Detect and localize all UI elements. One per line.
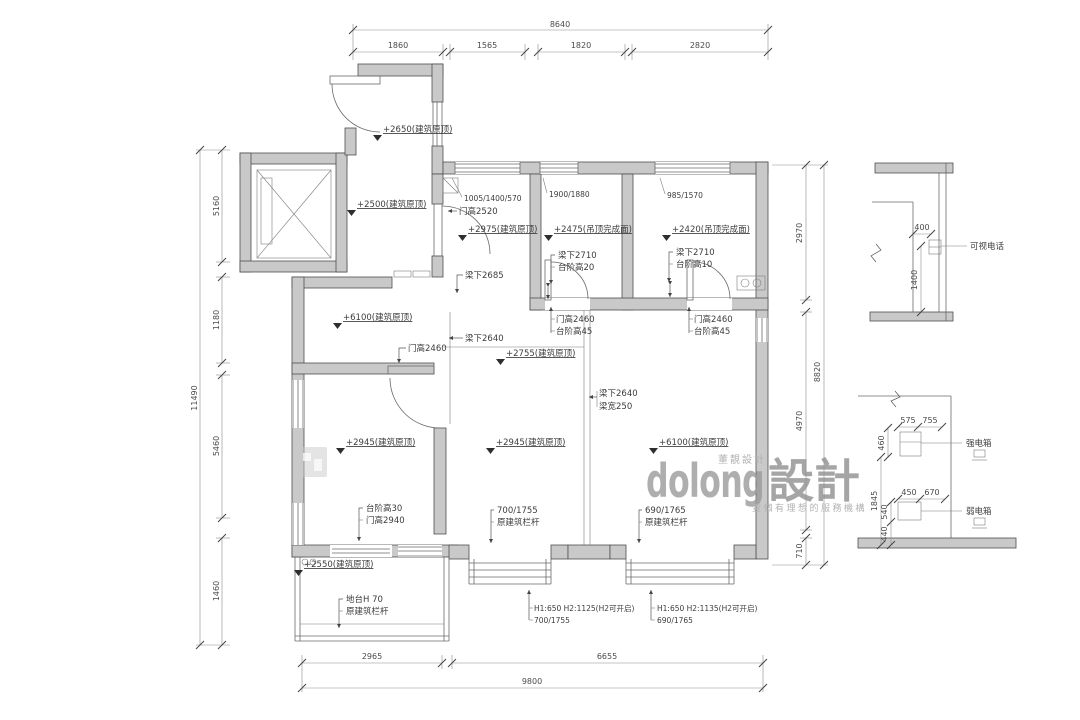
detail-dim: 755 (922, 416, 937, 425)
door-height-note: 门高2460 (694, 314, 733, 325)
dim-right-total: 8820 (813, 362, 822, 382)
railing-note: 原建筑栏杆 (645, 517, 688, 528)
watermark-logo-latin: dolong (646, 454, 764, 508)
note-annotations: 门高2520 1005/1400/570 1900/1880 985/1570 … (339, 178, 757, 628)
detail-dim: 440 (880, 526, 889, 541)
entry-door-leaf (434, 204, 442, 256)
railing-size-note: 700/1755 (497, 506, 538, 516)
level-label: +2975(建筑原顶) (468, 224, 537, 235)
dim-left-1: 5160 (212, 196, 221, 216)
detail-intercom: 400 1400 可视电话 (870, 163, 1005, 321)
level-label: +6100(建筑原顶) (343, 312, 412, 323)
window-size-note: 690/1765 (657, 616, 693, 625)
detail-dim: 1845 (870, 491, 879, 511)
detail-dim: 540 (880, 504, 889, 519)
dim-top-3: 1820 (571, 41, 591, 50)
box-symbol (974, 450, 985, 457)
dimension-chain-top: 8640 1860 1565 1820 2820 (349, 20, 772, 60)
break-symbol (891, 391, 900, 407)
box-symbol (974, 518, 985, 525)
beam-note: 梁下2710 (676, 248, 715, 258)
dim-left-2: 1180 (212, 310, 221, 330)
dimension-chain-left: 11490 5160 1180 5460 1460 (190, 146, 230, 649)
detail-dim: 460 (877, 435, 886, 450)
dim-right-3: 710 (795, 543, 804, 558)
detail-electrical: 强电箱 弱电箱 575 755 460 1845 450 670 540 440 (858, 391, 1016, 549)
dim-top-4: 2820 (690, 41, 710, 50)
watermark-tagline-bottom: 壹個有理想的服務機構 (752, 502, 867, 514)
level-label: +2945(建筑原顶) (496, 437, 565, 448)
railing-note: 原建筑栏杆 (346, 606, 389, 617)
dim-bottom-2: 6655 (597, 652, 617, 661)
break-symbol (871, 244, 881, 262)
window-size-note: 985/1570 (667, 191, 703, 200)
floor-plan-canvas: 8640 1860 1565 1820 2820 11490 5160 1180… (0, 0, 1080, 720)
dim-left-4: 1460 (212, 581, 221, 601)
detail-dim: 450 (901, 488, 916, 497)
step-note: 台阶高45 (694, 326, 730, 337)
intercom-label: 可视电话 (970, 241, 1005, 252)
dim-bottom-1: 2965 (362, 652, 382, 661)
window-size-note: 1005/1400/570 (464, 194, 522, 203)
watermark-logo-cjk: 設計 (768, 454, 860, 508)
window-size-note: 700/1755 (534, 616, 570, 625)
window-opening-note: H1:650 H2:1125(H2可开启) (534, 603, 634, 613)
weak-electric-box (898, 502, 921, 520)
dim-top-total: 8640 (550, 20, 570, 29)
level-label: +2500(建筑原顶) (357, 199, 426, 210)
strong-electric-box (900, 432, 921, 456)
window-size-note: 1900/1880 (549, 190, 590, 199)
beam-width-note: 梁宽250 (599, 401, 632, 412)
window-opening-note: H1:650 H2:1135(H2可开启) (657, 603, 757, 613)
detail-dim: 575 (900, 416, 915, 425)
step-note: 台阶高30 (366, 503, 402, 514)
strong-box-label: 强电箱 (966, 438, 992, 449)
beam-note: 梁下2710 (558, 251, 597, 261)
door-height-note: 门高2460 (408, 343, 447, 354)
railing-note: 原建筑栏杆 (497, 517, 540, 528)
floor-plan-drawing: 8640 1860 1565 1820 2820 11490 5160 1180… (0, 0, 1080, 720)
beam-note: 梁下2640 (465, 334, 504, 344)
beam-note: 梁下2640 (599, 389, 638, 399)
platform-note: 地台H 70 (346, 594, 383, 605)
level-label: +2475(吊顶完成面) (554, 224, 632, 235)
detail-dim: 670 (924, 488, 939, 497)
porch-door-arc (332, 84, 380, 132)
door-height-note: 门高2460 (556, 314, 595, 325)
level-label: +2550(建筑原顶) (304, 559, 373, 570)
step-note: 台阶高45 (556, 326, 592, 337)
detail-dim: 1400 (910, 270, 919, 290)
left-room-door-arc (390, 378, 440, 428)
door-height-note: 门高2940 (366, 515, 405, 526)
step-note: 台阶高10 (676, 259, 712, 270)
dim-top-1: 1860 (388, 41, 408, 50)
dim-right-1: 2970 (795, 223, 804, 243)
watermark-seal (297, 447, 327, 477)
dimension-chain-bottom: 2965 6655 9800 (298, 652, 767, 692)
step-note: 台阶高20 (558, 262, 594, 273)
detail-dim: 400 (914, 223, 929, 232)
level-label: +2945(建筑原顶) (346, 437, 415, 448)
level-label: +2755(建筑原顶) (506, 348, 575, 359)
elevator-shaft (240, 153, 347, 272)
level-label: +6100(建筑原顶) (659, 437, 728, 448)
beam-note: 梁下2685 (465, 271, 504, 281)
weak-box-label: 弱电箱 (966, 506, 992, 517)
dim-top-2: 1565 (477, 41, 497, 50)
porch-door-leaf (330, 76, 380, 84)
level-label: +2420(吊顶完成面) (672, 224, 750, 235)
level-label: +2650(建筑原顶) (383, 124, 452, 135)
dim-left-3: 5460 (212, 436, 221, 456)
dim-left-total: 11490 (190, 385, 199, 410)
door-height-note: 门高2520 (459, 206, 498, 217)
dim-bottom-total: 9800 (522, 677, 542, 686)
dim-right-2: 4970 (795, 411, 804, 431)
